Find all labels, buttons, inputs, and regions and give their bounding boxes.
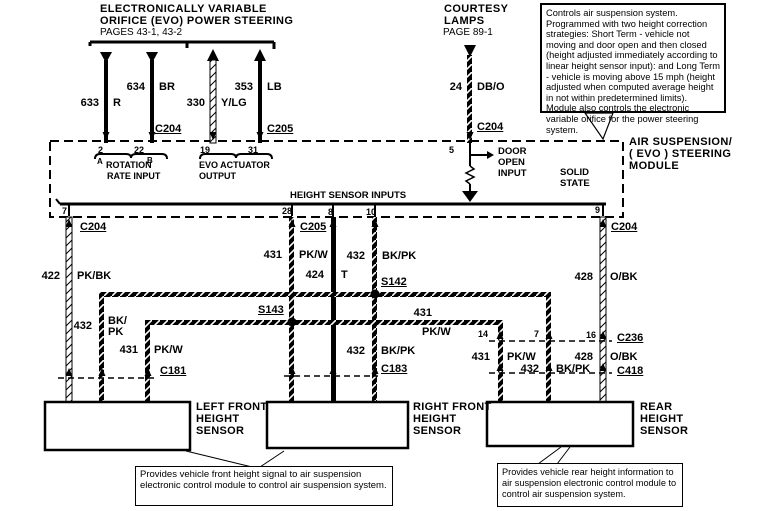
courtesy-header-page: PAGE 89-1 bbox=[443, 28, 493, 38]
connector-C205-top: C205 bbox=[267, 124, 293, 135]
pin-10: 10 bbox=[366, 208, 376, 217]
rear-sensor-note: Provides vehicle rear height information… bbox=[497, 463, 683, 507]
connector-C205-bottom: C205 bbox=[300, 222, 326, 233]
splice-S142-label: S142 bbox=[381, 277, 407, 288]
wire-24-color: DB/O bbox=[477, 82, 505, 93]
wire-428-OBK bbox=[600, 217, 606, 402]
connector-C204-top: C204 bbox=[155, 124, 181, 135]
wire-330-number: 330 bbox=[177, 98, 205, 109]
wire-353-number: 353 bbox=[225, 82, 253, 93]
wire-432-s142-color: BK/PK bbox=[382, 251, 416, 262]
height-sensor-inputs-label: HEIGHT SENSOR INPUTS bbox=[290, 191, 406, 201]
evo-actuator-label: EVO ACTUATOR bbox=[199, 161, 270, 171]
wire-432-rear-number: 432 bbox=[511, 364, 539, 375]
right-front-height-sensor-box bbox=[267, 402, 408, 448]
door-open-line2: OPEN bbox=[498, 158, 525, 168]
wire-424-color: T bbox=[341, 270, 348, 281]
wire-432-left-color: BK/ PK bbox=[108, 316, 127, 338]
left-front-sensor-line3: SENSOR bbox=[196, 425, 244, 437]
module-name-line2: ( EVO ) STEERING bbox=[629, 149, 731, 160]
left-front-sensor-line2: HEIGHT bbox=[196, 413, 239, 425]
wire-432-BKPK-left-leg bbox=[99, 294, 104, 402]
wire-353-LB bbox=[254, 49, 266, 143]
wire-432-BKPK-rear-leg bbox=[546, 294, 551, 402]
courtesy-header-line1: COURTESY bbox=[444, 4, 508, 15]
evo-header-brace bbox=[90, 42, 274, 49]
wire-24-number: 24 bbox=[434, 82, 462, 93]
pin-31: 31 bbox=[248, 146, 258, 155]
rear-sensor-line2: HEIGHT bbox=[640, 413, 683, 425]
door-open-arrow-icon bbox=[487, 151, 494, 159]
solid-state-line2: STATE bbox=[560, 179, 590, 189]
door-open-line3: INPUT bbox=[498, 169, 527, 179]
splice-S143-label: S143 bbox=[258, 305, 284, 316]
wire-432-mid-number: 432 bbox=[337, 346, 365, 357]
connector-C204-courtesy: C204 bbox=[477, 122, 503, 133]
evo-header-pages: PAGES 43-1, 43-2 bbox=[100, 28, 182, 38]
pin-5: 5 bbox=[449, 146, 454, 155]
wire-428-top-color: O/BK bbox=[610, 272, 638, 283]
rear-sensor-line1: REAR bbox=[640, 401, 672, 413]
rotation-a-label: A bbox=[97, 158, 103, 166]
rate-input-label: RATE INPUT bbox=[107, 172, 160, 182]
wire-431-c205-number: 431 bbox=[254, 250, 282, 261]
rotation-rate-brace bbox=[95, 154, 167, 159]
splice-S143 bbox=[288, 318, 297, 327]
wire-422-number: 422 bbox=[32, 271, 60, 282]
wire-431-PKW-left-leg bbox=[145, 322, 150, 402]
wire-431-rear-color: PK/W bbox=[507, 352, 536, 363]
right-front-sensor-line3: SENSOR bbox=[413, 425, 461, 437]
front-sensor-note: Provides vehicle front height signal to … bbox=[135, 466, 393, 506]
module-name-line1: AIR SUSPENSION/ bbox=[629, 137, 732, 148]
wire-431-left-color: PK/W bbox=[154, 345, 183, 356]
wire-633-color: R bbox=[113, 98, 121, 109]
front-note-callout-pointer bbox=[186, 451, 284, 467]
ground-icon bbox=[462, 191, 478, 202]
pin-22: 22 bbox=[134, 146, 144, 155]
wire-432-rear-color: BK/PK bbox=[556, 364, 590, 375]
pin-16: 16 bbox=[586, 331, 596, 340]
pin-9: 9 bbox=[595, 206, 600, 215]
wire-633-number: 633 bbox=[71, 98, 99, 109]
door-open-line1: DOOR bbox=[498, 147, 527, 157]
rotation-b-label: B bbox=[147, 157, 153, 165]
evo-header-line1: ELECTRONICALLY VARIABLE bbox=[100, 4, 267, 15]
left-front-height-sensor-box bbox=[45, 402, 190, 450]
wire-431-rear-number: 431 bbox=[462, 352, 490, 363]
splice-S142 bbox=[371, 290, 380, 299]
wire-431-PKW-horizontal bbox=[145, 320, 503, 325]
wire-424-T bbox=[331, 217, 336, 402]
wire-428-top-number: 428 bbox=[565, 272, 593, 283]
wire-432-left-number: 432 bbox=[64, 321, 92, 332]
connector-C204-left: C204 bbox=[80, 222, 106, 233]
connector-C418: C418 bbox=[617, 366, 643, 377]
door-open-input-circuit bbox=[462, 143, 494, 202]
module-name-line3: MODULE bbox=[629, 161, 679, 172]
wire-330-color: Y/LG bbox=[221, 98, 247, 109]
wire-431-mid-number: 431 bbox=[404, 308, 432, 319]
wire-431-PKW-c205 bbox=[289, 217, 294, 402]
pin-19: 19 bbox=[200, 146, 210, 155]
wire-432-BKPK-c205 bbox=[372, 217, 377, 402]
wire-428-rear-number: 428 bbox=[565, 352, 593, 363]
rear-sensor-line3: SENSOR bbox=[640, 425, 688, 437]
rear-note-callout-pointer bbox=[538, 447, 570, 464]
courtesy-header-line2: LAMPS bbox=[444, 16, 485, 27]
evo-output-label: OUTPUT bbox=[199, 172, 236, 182]
wire-432-BKPK-horizontal bbox=[99, 292, 551, 297]
evo-actuator-brace bbox=[200, 154, 272, 159]
connector-C181: C181 bbox=[160, 366, 186, 377]
wire-24-DBO bbox=[464, 45, 476, 143]
solid-state-line1: SOLID bbox=[560, 168, 589, 178]
evo-header-line2: ORIFICE (EVO) POWER STEERING bbox=[100, 16, 293, 27]
connector-C236: C236 bbox=[617, 333, 643, 344]
pin-7: 7 bbox=[62, 207, 67, 216]
pin-8: 8 bbox=[328, 208, 333, 217]
wire-424-number: 424 bbox=[296, 270, 324, 281]
wire-634-color: BR bbox=[159, 82, 175, 93]
pin-7-c236: 7 bbox=[534, 330, 539, 339]
module-description-note: Controls air suspension system. Programm… bbox=[540, 3, 726, 113]
pin-2: 2 bbox=[98, 146, 103, 155]
pin-28: 28 bbox=[282, 207, 292, 216]
wire-432-mid-color: BK/PK bbox=[381, 346, 415, 357]
resistor-icon bbox=[466, 166, 474, 184]
wire-431-c205-color: PK/W bbox=[299, 250, 328, 261]
wire-634-number: 634 bbox=[117, 82, 145, 93]
right-front-sensor-line2: HEIGHT bbox=[413, 413, 456, 425]
connector-C204-right: C204 bbox=[611, 222, 637, 233]
wire-428-rear-color: O/BK bbox=[610, 352, 638, 363]
rotation-label: ROTATION bbox=[106, 161, 152, 171]
wire-330-YLG bbox=[207, 49, 219, 143]
right-front-sensor-line1: RIGHT FRONT bbox=[413, 401, 491, 413]
wire-432-s142-number: 432 bbox=[337, 251, 365, 262]
wire-431-mid-color: PK/W bbox=[422, 327, 451, 338]
wiring-diagram-page: ELECTRONICALLY VARIABLE ORIFICE (EVO) PO… bbox=[0, 0, 768, 511]
pin-14: 14 bbox=[478, 330, 488, 339]
rear-height-sensor-box bbox=[487, 402, 633, 446]
wire-431-left-number: 431 bbox=[110, 345, 138, 356]
wire-422-color: PK/BK bbox=[77, 271, 111, 282]
connector-C183: C183 bbox=[381, 364, 407, 375]
left-front-sensor-line1: LEFT FRONT bbox=[196, 401, 267, 413]
wire-633-R bbox=[100, 52, 112, 143]
wire-353-color: LB bbox=[267, 82, 282, 93]
